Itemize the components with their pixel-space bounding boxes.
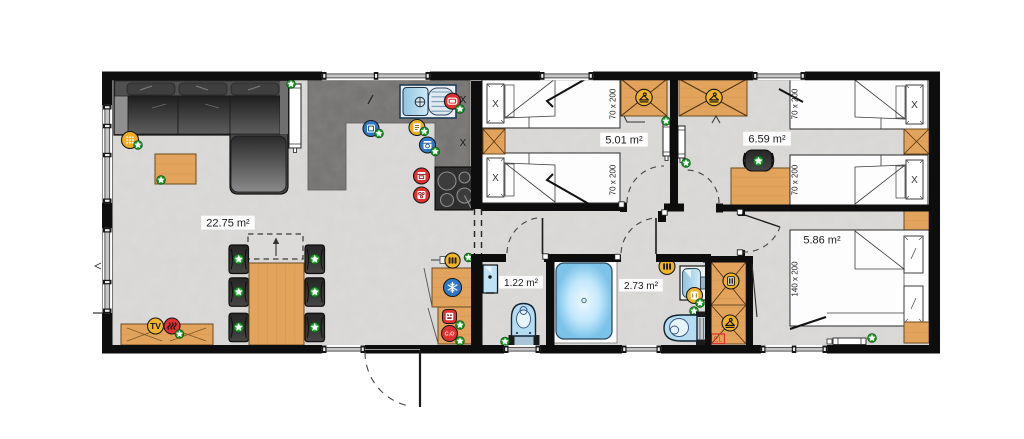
svg-text:5.01 m²: 5.01 m² xyxy=(605,135,643,147)
svg-text:X: X xyxy=(911,100,918,111)
svg-text:70 x 200: 70 x 200 xyxy=(791,164,800,195)
svg-text:5.86 m²: 5.86 m² xyxy=(803,235,841,247)
svg-text:22.75 m²: 22.75 m² xyxy=(206,218,250,230)
svg-text:EL: EL xyxy=(714,337,723,344)
svg-text:X: X xyxy=(492,99,499,110)
svg-text:C.O: C.O xyxy=(445,332,456,338)
svg-text:X: X xyxy=(911,175,918,186)
svg-text:70 x 200: 70 x 200 xyxy=(791,88,800,119)
svg-text:TV: TV xyxy=(150,321,161,331)
svg-text:X: X xyxy=(460,95,467,106)
svg-text:6.59 m²: 6.59 m² xyxy=(748,134,786,146)
svg-text:140 x 200: 140 x 200 xyxy=(791,261,800,297)
svg-text:70 x 200: 70 x 200 xyxy=(609,164,618,195)
svg-text:X: X xyxy=(492,173,499,184)
svg-text:1.22 m²: 1.22 m² xyxy=(504,278,539,289)
svg-text:2.73 m²: 2.73 m² xyxy=(624,281,659,292)
svg-text:X: X xyxy=(460,138,467,149)
svg-text:70 x 200: 70 x 200 xyxy=(609,88,618,119)
